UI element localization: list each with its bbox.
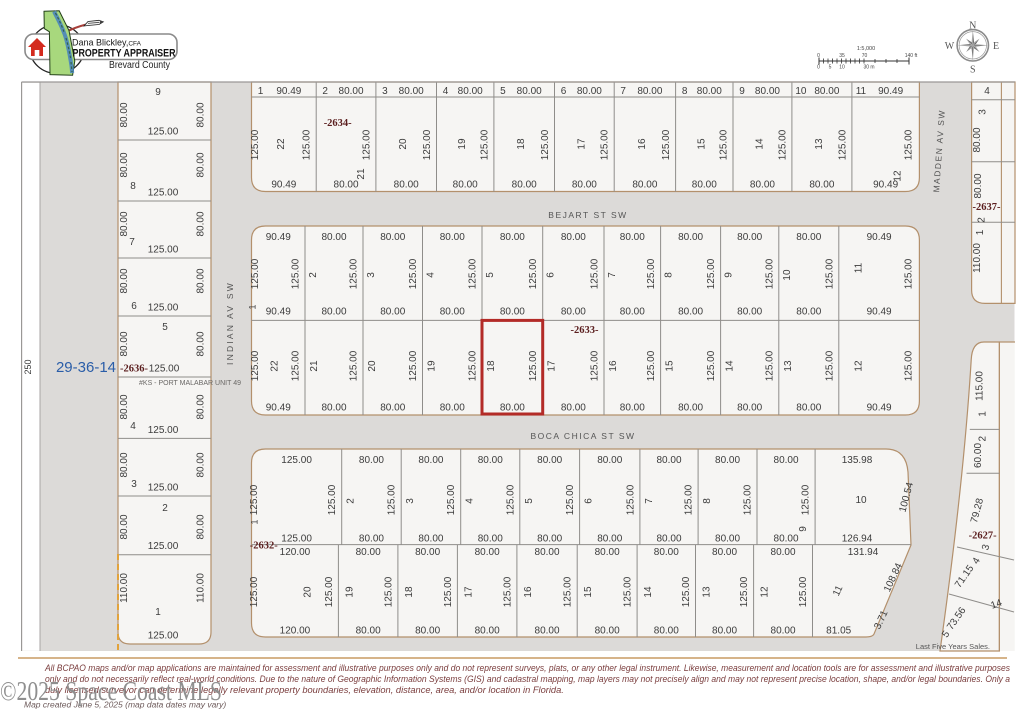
svg-text:125.00: 125.00	[706, 350, 717, 381]
svg-text:80.00: 80.00	[654, 547, 679, 558]
svg-text:6: 6	[546, 272, 557, 278]
svg-text:125.00: 125.00	[422, 129, 433, 160]
svg-text:1: 1	[250, 519, 260, 524]
svg-text:17: 17	[576, 138, 587, 150]
svg-text:80.00: 80.00	[339, 86, 364, 97]
svg-text:90.49: 90.49	[873, 180, 898, 191]
svg-text:80.00: 80.00	[572, 180, 597, 191]
svg-text:125.00: 125.00	[625, 484, 636, 515]
svg-text:2: 2	[322, 86, 328, 97]
svg-text:80.00: 80.00	[537, 455, 562, 466]
svg-text:22: 22	[276, 138, 287, 150]
svg-text:80.00: 80.00	[737, 307, 762, 318]
svg-text:80.00: 80.00	[196, 394, 207, 419]
svg-text:Last Five Years Sales.: Last Five Years Sales.	[916, 642, 990, 651]
svg-text:125.00: 125.00	[563, 576, 574, 607]
svg-text:131.94: 131.94	[848, 547, 879, 558]
svg-text:80.00: 80.00	[656, 455, 681, 466]
svg-text:19: 19	[457, 138, 468, 150]
svg-text:5: 5	[829, 65, 832, 71]
svg-text:80.00: 80.00	[678, 307, 703, 318]
svg-text:15: 15	[583, 586, 594, 598]
svg-text:2: 2	[977, 435, 988, 441]
svg-text:BEJART ST SW: BEJART ST SW	[548, 210, 627, 220]
svg-text:250: 250	[23, 359, 33, 374]
svg-text:120.00: 120.00	[280, 547, 311, 558]
svg-text:0: 0	[817, 65, 820, 71]
svg-text:80.00: 80.00	[418, 455, 443, 466]
svg-text:22: 22	[270, 360, 281, 372]
svg-text:8: 8	[682, 86, 688, 97]
svg-text:17: 17	[463, 586, 474, 598]
svg-text:110.00: 110.00	[119, 573, 130, 603]
svg-text:4: 4	[130, 421, 136, 432]
svg-text:80.00: 80.00	[458, 86, 483, 97]
svg-text:80.00: 80.00	[380, 307, 405, 318]
svg-text:80.00: 80.00	[418, 534, 443, 545]
svg-text:80.00: 80.00	[478, 534, 503, 545]
svg-text:125.00: 125.00	[903, 350, 914, 381]
svg-text:10: 10	[795, 86, 807, 97]
svg-text:80.00: 80.00	[399, 86, 424, 97]
svg-text:125.00: 125.00	[623, 576, 634, 607]
svg-text:80.00: 80.00	[196, 452, 207, 477]
svg-text:7: 7	[607, 272, 618, 278]
svg-text:125.00: 125.00	[349, 350, 360, 381]
svg-text:80.00: 80.00	[196, 211, 207, 236]
svg-text:-2637-: -2637-	[973, 202, 1001, 213]
svg-text:80.00: 80.00	[356, 626, 381, 637]
svg-text:3: 3	[382, 86, 388, 97]
svg-text:80.00: 80.00	[597, 534, 622, 545]
svg-text:80.00: 80.00	[196, 331, 207, 356]
svg-text:90.49: 90.49	[867, 403, 892, 414]
svg-text:#KS - PORT MALABAR UNIT 49: #KS - PORT MALABAR UNIT 49	[139, 378, 241, 387]
svg-text:125.00: 125.00	[505, 484, 516, 515]
svg-text:80.00: 80.00	[196, 514, 207, 539]
svg-text:80.00: 80.00	[678, 232, 703, 243]
svg-text:80.00: 80.00	[380, 403, 405, 414]
svg-text:90.49: 90.49	[867, 307, 892, 318]
svg-text:-2634-: -2634-	[324, 118, 352, 129]
svg-text:80.00: 80.00	[712, 547, 737, 558]
svg-text:S: S	[970, 65, 976, 76]
svg-text:125.00: 125.00	[590, 350, 601, 381]
svg-text:10: 10	[855, 495, 867, 506]
svg-text:8: 8	[130, 181, 136, 192]
svg-text:80.00: 80.00	[196, 268, 207, 293]
svg-text:125.00: 125.00	[281, 534, 312, 545]
svg-text:80.00: 80.00	[620, 403, 645, 414]
svg-text:11: 11	[856, 86, 867, 97]
svg-text:1: 1	[977, 411, 988, 417]
svg-text:80.00: 80.00	[656, 534, 681, 545]
svg-text:60.00: 60.00	[973, 443, 984, 468]
svg-text:80.00: 80.00	[814, 86, 839, 97]
svg-text:125.00: 125.00	[148, 483, 179, 494]
svg-text:9: 9	[798, 526, 809, 532]
svg-text:125.00: 125.00	[249, 484, 260, 515]
svg-text:80.00: 80.00	[561, 403, 586, 414]
svg-text:PROPERTY APPRAISER: PROPERTY APPRAISER	[73, 48, 176, 60]
svg-text:11: 11	[853, 262, 864, 273]
svg-text:125.00: 125.00	[250, 258, 261, 289]
svg-text:80.00: 80.00	[415, 626, 440, 637]
svg-text:80.00: 80.00	[475, 626, 500, 637]
svg-text:125.00: 125.00	[528, 258, 539, 289]
svg-text:14: 14	[725, 360, 736, 372]
svg-text:90.49: 90.49	[266, 232, 291, 243]
svg-text:80.00: 80.00	[517, 86, 542, 97]
svg-text:15: 15	[665, 360, 676, 372]
svg-text:125.00: 125.00	[327, 484, 338, 515]
svg-text:10: 10	[782, 269, 793, 281]
svg-text:80.00: 80.00	[715, 455, 740, 466]
svg-text:5: 5	[162, 322, 168, 333]
svg-text:80.00: 80.00	[500, 403, 525, 414]
svg-text:5: 5	[485, 272, 496, 278]
svg-text:110.00: 110.00	[972, 243, 983, 273]
svg-text:80.00: 80.00	[561, 232, 586, 243]
svg-text:80.00: 80.00	[692, 180, 717, 191]
svg-text:125.00: 125.00	[408, 350, 419, 381]
svg-text:3: 3	[366, 272, 377, 278]
svg-text:80.00: 80.00	[440, 307, 465, 318]
svg-text:80.00: 80.00	[796, 307, 821, 318]
svg-text:80.00: 80.00	[512, 180, 537, 191]
svg-text:125.00: 125.00	[824, 350, 835, 381]
svg-text:80.00: 80.00	[972, 127, 983, 152]
svg-text:125.00: 125.00	[324, 576, 335, 607]
svg-text:2: 2	[308, 272, 319, 278]
svg-text:80.00: 80.00	[620, 307, 645, 318]
svg-text:21: 21	[356, 168, 367, 180]
svg-text:80.00: 80.00	[577, 86, 602, 97]
svg-text:80.00: 80.00	[196, 102, 207, 127]
svg-text:80.00: 80.00	[597, 455, 622, 466]
svg-text:80.00: 80.00	[755, 86, 780, 97]
svg-text:125.00: 125.00	[149, 364, 180, 375]
svg-text:125.00: 125.00	[349, 258, 360, 289]
svg-text:81.05: 81.05	[826, 626, 851, 637]
svg-text:7: 7	[129, 237, 135, 248]
svg-text:80.00: 80.00	[119, 268, 130, 293]
svg-text:125.00: 125.00	[739, 576, 750, 607]
svg-text:80.00: 80.00	[196, 152, 207, 177]
svg-text:80.00: 80.00	[453, 180, 478, 191]
svg-text:4: 4	[465, 498, 476, 504]
svg-text:1: 1	[258, 86, 264, 97]
svg-text:80.00: 80.00	[394, 180, 419, 191]
svg-text:80.00: 80.00	[478, 455, 503, 466]
svg-text:19: 19	[427, 360, 438, 372]
svg-text:10: 10	[839, 65, 845, 71]
svg-text:80.00: 80.00	[119, 514, 130, 539]
svg-text:80.00: 80.00	[321, 307, 346, 318]
svg-text:125.00: 125.00	[540, 129, 551, 160]
svg-text:80.00: 80.00	[119, 331, 130, 356]
svg-text:©2025 Space Coast MLS: ©2025 Space Coast MLS	[0, 676, 222, 706]
svg-text:80.00: 80.00	[973, 173, 984, 198]
svg-text:120.00: 120.00	[280, 626, 311, 637]
svg-text:6: 6	[584, 498, 595, 504]
svg-text:90.49: 90.49	[271, 180, 296, 191]
svg-text:125.00: 125.00	[468, 258, 479, 289]
svg-text:125.00: 125.00	[719, 129, 730, 160]
svg-text:16: 16	[523, 586, 534, 598]
svg-text:20: 20	[367, 360, 378, 372]
svg-text:1: 1	[155, 607, 161, 618]
svg-text:80.00: 80.00	[774, 534, 799, 545]
svg-text:80.00: 80.00	[321, 232, 346, 243]
svg-text:125.00: 125.00	[590, 258, 601, 289]
svg-text:14: 14	[643, 586, 654, 598]
svg-text:2: 2	[977, 217, 988, 223]
svg-text:80.00: 80.00	[809, 180, 834, 191]
svg-text:80.00: 80.00	[595, 626, 620, 637]
svg-text:16: 16	[637, 138, 648, 150]
svg-text:80.00: 80.00	[796, 403, 821, 414]
svg-text:80.00: 80.00	[632, 180, 657, 191]
svg-text:4: 4	[443, 86, 449, 97]
svg-text:80.00: 80.00	[500, 307, 525, 318]
svg-text:80.00: 80.00	[712, 626, 737, 637]
svg-text:125.00: 125.00	[777, 129, 788, 160]
svg-text:125.00: 125.00	[148, 188, 179, 199]
svg-text:125.00: 125.00	[383, 576, 394, 607]
svg-text:80.00: 80.00	[697, 86, 722, 97]
svg-text:80.00: 80.00	[359, 455, 384, 466]
svg-text:9: 9	[724, 272, 735, 278]
svg-text:125.00: 125.00	[387, 484, 398, 515]
svg-text:125.00: 125.00	[646, 258, 657, 289]
svg-text:125.00: 125.00	[528, 350, 539, 381]
svg-text:90.49: 90.49	[867, 232, 892, 243]
svg-text:125.00: 125.00	[600, 129, 611, 160]
svg-text:125.00: 125.00	[764, 350, 775, 381]
svg-text:E: E	[993, 41, 999, 52]
svg-text:0: 0	[817, 53, 820, 59]
svg-text:125.00: 125.00	[250, 129, 261, 160]
svg-text:17: 17	[547, 360, 558, 372]
svg-text:6: 6	[131, 301, 137, 312]
svg-text:80.00: 80.00	[415, 547, 440, 558]
svg-text:125.00: 125.00	[646, 350, 657, 381]
svg-text:80.00: 80.00	[440, 232, 465, 243]
svg-text:126.94: 126.94	[842, 534, 873, 545]
svg-text:29-36-14: 29-36-14	[56, 359, 116, 376]
svg-text:80.00: 80.00	[595, 547, 620, 558]
svg-text:All BCPAO maps and/or map appl: All BCPAO maps and/or map applications a…	[44, 663, 1010, 673]
svg-text:80.00: 80.00	[359, 534, 384, 545]
svg-text:4: 4	[426, 272, 437, 278]
svg-text:125.00: 125.00	[565, 484, 576, 515]
svg-text:16: 16	[608, 360, 619, 372]
svg-text:125.00: 125.00	[148, 245, 179, 256]
svg-text:125.00: 125.00	[443, 576, 454, 607]
svg-text:125.00: 125.00	[824, 258, 835, 289]
svg-text:80.00: 80.00	[561, 307, 586, 318]
svg-text:30 m: 30 m	[863, 65, 874, 71]
svg-text:-2632-: -2632-	[250, 541, 278, 552]
svg-text:125.00: 125.00	[281, 455, 312, 466]
svg-text:140 ft: 140 ft	[905, 53, 918, 59]
svg-text:3: 3	[131, 479, 137, 490]
svg-text:80.00: 80.00	[119, 394, 130, 419]
svg-text:15: 15	[696, 138, 707, 150]
svg-text:80.00: 80.00	[637, 86, 662, 97]
svg-text:80.00: 80.00	[334, 180, 359, 191]
svg-text:80.00: 80.00	[321, 403, 346, 414]
svg-text:80.00: 80.00	[500, 232, 525, 243]
svg-text:21: 21	[309, 360, 320, 372]
svg-text:6: 6	[561, 86, 567, 97]
svg-text:80.00: 80.00	[475, 547, 500, 558]
svg-text:125.00: 125.00	[361, 129, 372, 160]
svg-text:BOCA CHICA ST SW: BOCA CHICA ST SW	[530, 431, 635, 441]
svg-text:18: 18	[516, 138, 527, 150]
svg-text:2: 2	[346, 498, 357, 504]
svg-text:12: 12	[853, 360, 864, 372]
svg-text:125.00: 125.00	[837, 129, 848, 160]
svg-text:20: 20	[303, 586, 314, 598]
svg-text:80.00: 80.00	[715, 534, 740, 545]
svg-text:13: 13	[783, 360, 794, 372]
svg-text:18: 18	[486, 360, 497, 372]
svg-text:-2636-: -2636-	[120, 364, 148, 375]
svg-text:125.00: 125.00	[148, 127, 179, 138]
svg-text:3: 3	[405, 498, 416, 504]
svg-text:90.49: 90.49	[266, 403, 291, 414]
svg-text:7: 7	[644, 498, 655, 504]
svg-text:125.00: 125.00	[502, 576, 513, 607]
svg-text:5: 5	[500, 86, 506, 97]
svg-text:125.00: 125.00	[661, 129, 672, 160]
svg-text:12: 12	[760, 586, 771, 598]
svg-text:125.00: 125.00	[743, 484, 754, 515]
svg-text:80.00: 80.00	[535, 547, 560, 558]
svg-text:135.98: 135.98	[842, 455, 873, 466]
svg-text:4: 4	[984, 86, 990, 97]
svg-text:125.00: 125.00	[681, 576, 692, 607]
svg-text:80.00: 80.00	[440, 403, 465, 414]
svg-text:125.00: 125.00	[684, 484, 695, 515]
svg-text:14: 14	[754, 138, 765, 150]
svg-text:125.00: 125.00	[479, 129, 490, 160]
svg-text:2: 2	[162, 503, 168, 514]
svg-text:7: 7	[620, 86, 626, 97]
svg-text:125.00: 125.00	[249, 576, 260, 607]
svg-text:125.00: 125.00	[250, 350, 261, 381]
svg-text:125.00: 125.00	[148, 425, 179, 436]
svg-text:1:5,000: 1:5,000	[857, 46, 875, 52]
svg-text:80.00: 80.00	[771, 626, 796, 637]
svg-text:1: 1	[975, 229, 986, 235]
svg-text:80.00: 80.00	[774, 455, 799, 466]
svg-text:80.00: 80.00	[119, 211, 130, 236]
svg-text:9: 9	[739, 86, 745, 97]
svg-text:80.00: 80.00	[771, 547, 796, 558]
svg-text:110.00: 110.00	[196, 573, 207, 603]
svg-text:80.00: 80.00	[537, 534, 562, 545]
svg-text:125.00: 125.00	[801, 484, 812, 515]
svg-text:19: 19	[344, 586, 355, 598]
svg-text:80.00: 80.00	[620, 232, 645, 243]
svg-text:90.49: 90.49	[266, 307, 291, 318]
svg-text:80.00: 80.00	[737, 232, 762, 243]
svg-text:80.00: 80.00	[750, 180, 775, 191]
svg-text:125.00: 125.00	[408, 258, 419, 289]
svg-text:1: 1	[248, 304, 258, 309]
svg-text:90.49: 90.49	[878, 86, 903, 97]
svg-text:80.00: 80.00	[119, 152, 130, 177]
svg-text:Brevard County: Brevard County	[109, 60, 170, 71]
svg-text:5: 5	[524, 498, 535, 504]
svg-text:3: 3	[978, 109, 989, 115]
svg-text:13: 13	[814, 138, 825, 150]
svg-text:20: 20	[398, 138, 409, 150]
svg-text:90.49: 90.49	[276, 86, 301, 97]
svg-text:-2633-: -2633-	[571, 325, 599, 336]
svg-text:115.00: 115.00	[975, 371, 986, 401]
svg-text:80.00: 80.00	[654, 626, 679, 637]
svg-text:W: W	[945, 41, 955, 52]
svg-text:8: 8	[664, 272, 675, 278]
svg-text:125.00: 125.00	[302, 129, 313, 160]
svg-text:13: 13	[702, 586, 713, 598]
svg-text:125.00: 125.00	[148, 541, 179, 552]
svg-text:35: 35	[839, 53, 845, 59]
svg-text:125.00: 125.00	[148, 303, 179, 314]
svg-text:80.00: 80.00	[678, 403, 703, 414]
svg-text:70: 70	[862, 53, 868, 59]
svg-text:125.00: 125.00	[903, 129, 914, 160]
svg-text:-2627-: -2627-	[969, 531, 997, 542]
svg-text:80.00: 80.00	[737, 403, 762, 414]
svg-text:125.00: 125.00	[291, 350, 302, 381]
svg-text:8: 8	[702, 498, 713, 504]
svg-text:80.00: 80.00	[119, 452, 130, 477]
svg-text:80.00: 80.00	[356, 547, 381, 558]
svg-text:125.00: 125.00	[706, 258, 717, 289]
svg-text:18: 18	[404, 586, 415, 598]
svg-text:125.00: 125.00	[903, 258, 914, 289]
svg-text:80.00: 80.00	[796, 232, 821, 243]
svg-text:125.00: 125.00	[148, 631, 179, 642]
svg-text:125.00: 125.00	[291, 258, 302, 289]
svg-text:80.00: 80.00	[535, 626, 560, 637]
svg-text:125.00: 125.00	[446, 484, 457, 515]
svg-text:125.00: 125.00	[764, 258, 775, 289]
svg-text:INDIAN AV SW: INDIAN AV SW	[225, 281, 235, 365]
svg-text:9: 9	[155, 87, 161, 98]
svg-text:80.00: 80.00	[380, 232, 405, 243]
svg-text:80.00: 80.00	[119, 102, 130, 127]
svg-text:N: N	[969, 21, 976, 32]
svg-text:125.00: 125.00	[798, 576, 809, 607]
svg-text:125.00: 125.00	[468, 350, 479, 381]
